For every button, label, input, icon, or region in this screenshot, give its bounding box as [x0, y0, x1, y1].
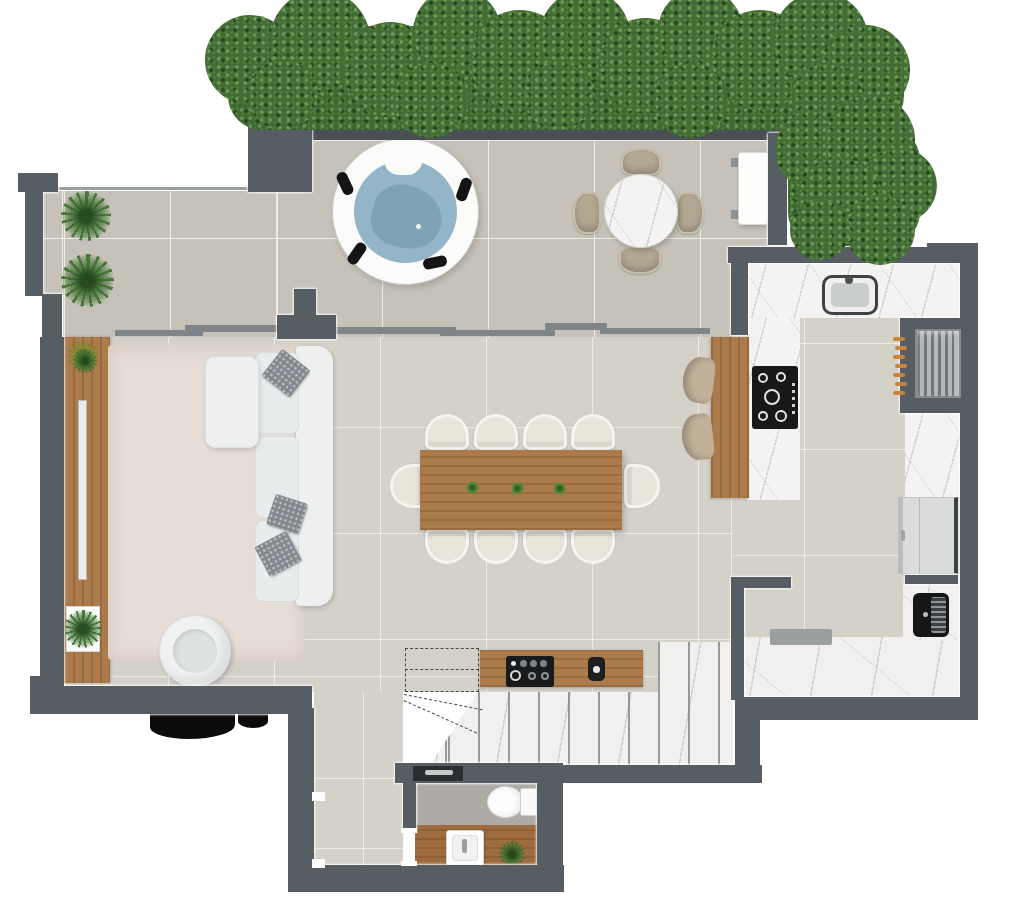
skewer-handles [893, 337, 917, 395]
grill [915, 329, 961, 398]
hot-tub-seat [385, 145, 423, 175]
console-plant [73, 349, 97, 373]
toilet-tank [520, 788, 537, 816]
sliding-door-track [600, 328, 710, 334]
potted-fern [61, 191, 111, 241]
terrace-corner-mask [36, 126, 252, 186]
exterior-unit-shadow [238, 714, 268, 728]
cooktop-burner [775, 410, 787, 422]
stair-dashed-diagonal-1 [404, 694, 483, 710]
washbasin-faucet [462, 839, 467, 853]
console-plant [64, 610, 102, 648]
floor-mat [770, 629, 832, 645]
cooktop-burner [758, 373, 768, 383]
bar-counter-foot [767, 158, 774, 167]
bar-counter-foot [731, 158, 738, 167]
shower-fixture [425, 770, 453, 775]
potted-fern [61, 254, 114, 307]
bathroom-plant [499, 841, 525, 867]
floor-plan [0, 0, 1024, 921]
dining-chair [425, 414, 469, 450]
outdoor-chair [573, 192, 601, 234]
table-plant [466, 481, 479, 494]
kitchen-sink-basin [831, 283, 869, 307]
sofa-chaise [205, 356, 259, 448]
armchair-cushion [173, 629, 217, 673]
bar-counter-foot [731, 210, 738, 219]
cooktop-knobs [792, 382, 795, 414]
cooktop-burner [776, 372, 786, 382]
outdoor-chair [619, 246, 661, 274]
sliding-door-track [185, 325, 280, 332]
sofa-back [296, 346, 333, 606]
cooktop-burner [764, 389, 780, 405]
kitchen-counter-right [905, 412, 960, 497]
dining-chair [523, 414, 567, 450]
built-in-appliance-dot [923, 612, 928, 617]
refrigerator [898, 497, 958, 574]
kettle [588, 657, 605, 681]
door-jamb [312, 859, 325, 868]
dining-chair [571, 414, 615, 450]
coffee-bar-counter [480, 650, 643, 687]
exterior-unit-shadow [150, 713, 235, 739]
dining-chair [474, 414, 518, 450]
sliding-door-track [440, 330, 555, 336]
table-plant [553, 482, 566, 495]
door-jamb [312, 792, 325, 801]
cooktop-burner [758, 411, 768, 421]
sliding-door-track [336, 327, 456, 334]
bathroom-door-jamb [401, 828, 417, 833]
outdoor-chair [621, 148, 661, 176]
bathroom-door-jamb [401, 861, 417, 866]
table-plant [511, 482, 524, 495]
outdoor-bistro-table [604, 174, 678, 248]
hallway-floor [314, 692, 403, 868]
service-corridor-floor [733, 637, 960, 697]
kitchen-faucet [845, 276, 853, 284]
sliding-door-track [545, 323, 607, 330]
tv [78, 400, 87, 580]
stair-dashed-outline [405, 648, 479, 692]
kitchen-island [711, 337, 749, 498]
built-in-appliance-vents [931, 597, 946, 633]
outdoor-chair [676, 192, 704, 234]
toilet-bowl [487, 786, 524, 818]
stair-dashed-line [405, 669, 479, 670]
bar-counter [738, 152, 768, 225]
espresso-machine [506, 656, 554, 687]
bar-counter-foot [767, 210, 774, 219]
refrigerator-divider [919, 498, 920, 573]
hot-tub-bubble [416, 224, 421, 229]
refrigerator-handle [901, 530, 905, 541]
